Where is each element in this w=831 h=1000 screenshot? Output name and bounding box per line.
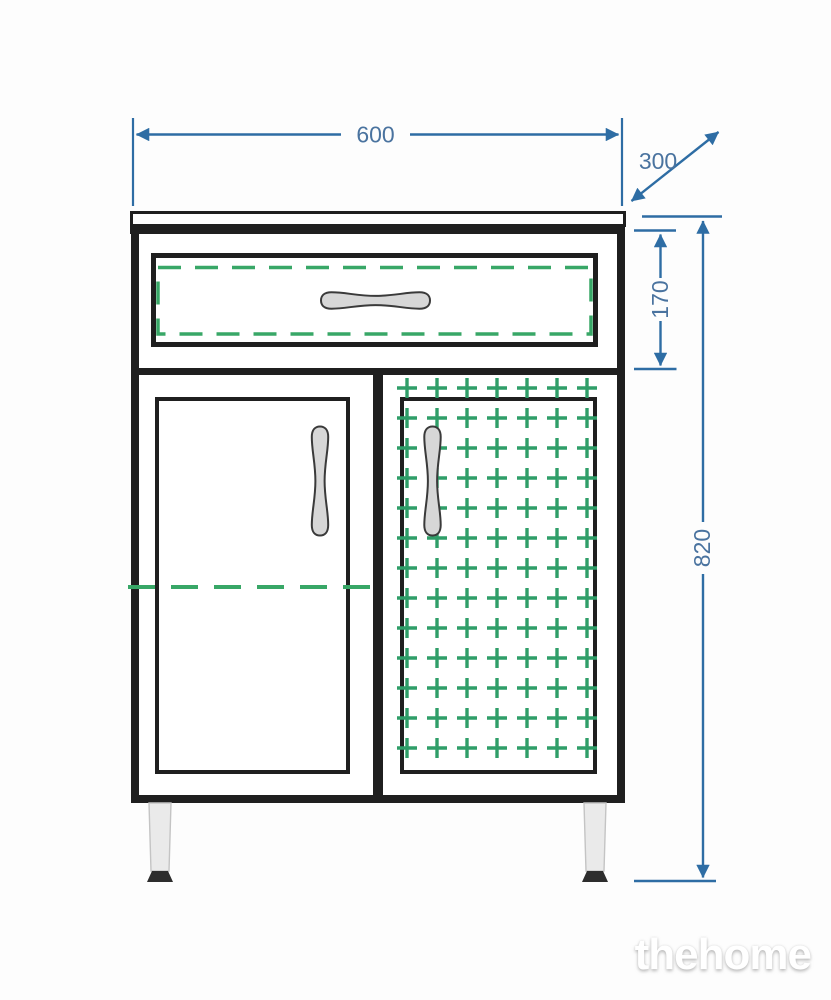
total-height-value-label: 820: [689, 529, 715, 567]
cabinet-technical-drawing-page: 600 300 170 820 thehome: [0, 0, 831, 1000]
countertop-edge-bar: [130, 225, 625, 234]
drawer-height-value-label: 170: [647, 280, 673, 318]
dimension-width-600: 600: [133, 118, 622, 206]
width-value-label: 600: [356, 122, 394, 148]
depth-value-label: 300: [639, 148, 677, 174]
dimension-drawer-height-170: 170: [634, 231, 677, 370]
left-foot: [147, 871, 173, 882]
bottom-panel: [131, 795, 625, 803]
cabinet-drawing-svg: 600 300 170 820: [0, 0, 831, 1000]
right-foot: [582, 871, 608, 882]
drawer-door-separator: [139, 368, 617, 375]
right-leg: [584, 803, 606, 871]
countertop: [132, 213, 625, 226]
left-side-panel: [131, 234, 139, 803]
cabinet: [128, 213, 625, 883]
right-side-panel: [617, 234, 625, 803]
left-leg: [149, 803, 171, 871]
thehome-watermark: thehome: [635, 930, 811, 980]
center-divider: [373, 375, 383, 795]
dimension-depth-300: 300: [632, 132, 719, 201]
